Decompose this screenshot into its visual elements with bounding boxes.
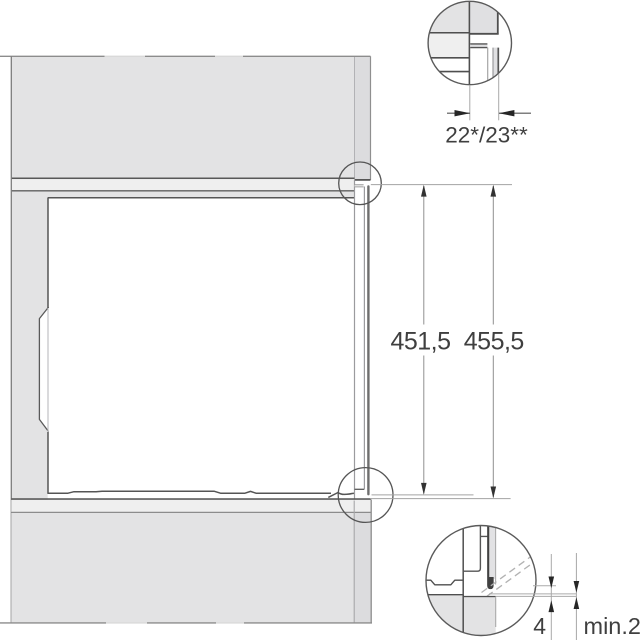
- svg-text:4: 4: [533, 613, 546, 639]
- svg-text:451,5: 451,5: [390, 328, 450, 356]
- svg-text:455,5: 455,5: [464, 328, 524, 356]
- svg-text:22*/23**: 22*/23**: [445, 123, 528, 148]
- svg-text:min.2: min.2: [584, 613, 640, 639]
